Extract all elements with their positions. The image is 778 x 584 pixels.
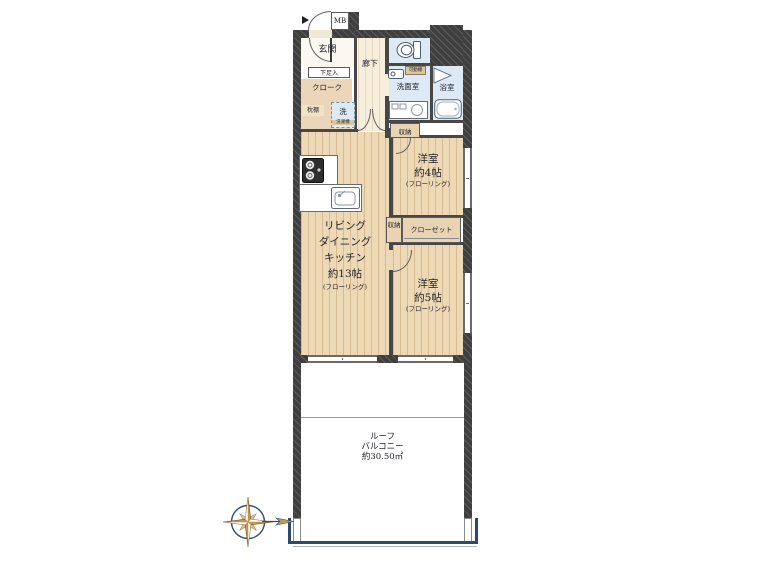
railing-right-stub: [475, 518, 478, 544]
laundry-note: 洗濯機: [332, 120, 354, 125]
entrance-door-gap: [309, 30, 332, 38]
movable-shelf-label: 可動棚: [409, 68, 423, 73]
hall-storage-label: 収納: [399, 126, 412, 136]
mb-side-block: [349, 12, 359, 30]
floor-plan-canvas: MB 下足入 枕棚 洗 洗濯機 可動棚 収納 収納 クローゼット: [0, 0, 778, 584]
room4-label-block: 洋室 約4帖 (フローリング): [393, 152, 463, 189]
closet-box: クローゼット: [402, 217, 461, 243]
room4-name: 洋室: [393, 152, 463, 166]
closet-storage-label: 収納: [388, 221, 401, 229]
closet-label: クローゼット: [411, 225, 453, 235]
pillow-shelf-label: 枕棚: [307, 107, 319, 114]
balcony-post-right: [464, 518, 472, 542]
shoe-cabinet-box: 下足入: [308, 67, 350, 78]
wall-top-right-block: [430, 25, 463, 66]
ldk-size: 約13帖: [301, 266, 389, 282]
railing-bottom: [288, 541, 478, 544]
toilet-icon: [396, 40, 422, 60]
movable-shelf-box: 可動棚: [405, 66, 426, 75]
ldk-window: [308, 355, 377, 363]
room5-size: 約5帖: [393, 291, 463, 305]
entrance-label: 玄関: [301, 45, 354, 55]
railing-underline: [293, 546, 477, 547]
closet-slide-line: [404, 238, 459, 239]
cloakroom-label: クローク: [301, 84, 353, 93]
compass-rose-icon: [218, 492, 298, 554]
stove-icon: [302, 158, 324, 183]
washroom-label: 洗面室: [386, 83, 430, 92]
wall-under-cloak: [301, 129, 358, 132]
room5-east-window: [463, 273, 472, 333]
room5-floor-note: (フローリング): [393, 305, 463, 314]
balcony-wall-right: [464, 363, 472, 518]
meter-box-label: MB: [334, 17, 346, 25]
meter-box: MB: [331, 12, 349, 30]
shoe-cabinet-label: 下足入: [320, 68, 338, 77]
kitchen-sink-icon: [331, 187, 360, 209]
balcony-line1: ルーフ: [301, 432, 464, 442]
laundry-label: 洗: [332, 103, 354, 120]
room4-size: 約4帖: [393, 166, 463, 180]
hall-storage-box: 収納: [390, 123, 420, 138]
bathtub-icon: [434, 99, 462, 119]
room4-east-window: [463, 148, 472, 208]
vanity-icon: [389, 101, 428, 119]
entrance-door-outer-arc: [308, 11, 331, 30]
balcony-size: 約30.50㎡: [301, 452, 464, 462]
washbasin-icon: [388, 64, 404, 74]
balcony-divider-line: [301, 417, 464, 418]
ldk-line1: リビング: [301, 218, 389, 234]
folding-door-icon: [433, 67, 453, 84]
room5-label-block: 洋室 約5帖 (フローリング): [393, 277, 463, 314]
porch-triangle-icon: [302, 16, 309, 24]
laundry-box: 洗 洗濯機: [331, 102, 355, 128]
room5-name: 洋室: [393, 277, 463, 291]
bathroom-label: 浴室: [431, 84, 463, 93]
room4-floor-note: (フローリング): [393, 180, 463, 189]
pillow-shelf-box: 枕棚: [302, 105, 324, 116]
balcony-label-block: ルーフ バルコニー 約30.50㎡: [301, 432, 464, 462]
corridor-label: 廊下: [355, 59, 385, 68]
balcony-line2: バルコニー: [301, 442, 464, 452]
ldk-floor-note: (フローリング): [301, 282, 389, 292]
room5-south-window: [398, 355, 453, 363]
ldk-line2: ダイニング: [301, 234, 389, 250]
ldk-line3: キッチン: [301, 250, 389, 266]
ldk-label-block: リビング ダイニング キッチン 約13帖 (フローリング): [301, 218, 389, 292]
